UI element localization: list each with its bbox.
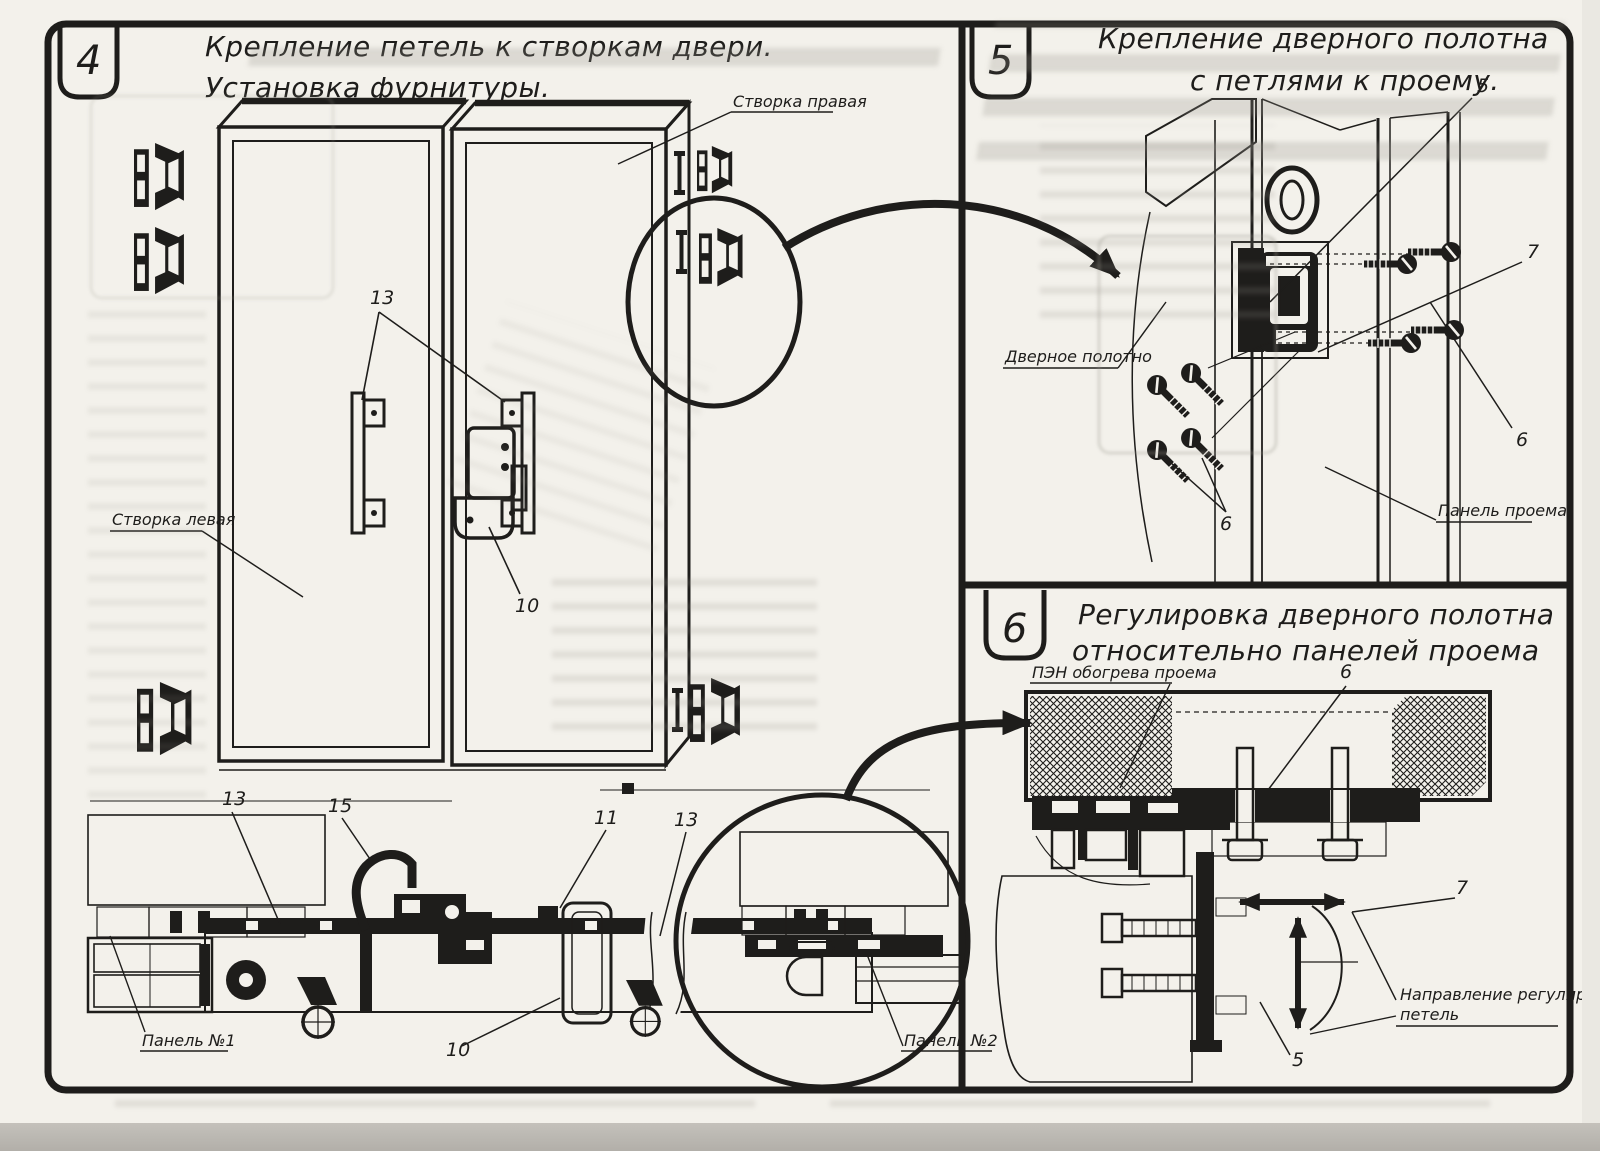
hinge-block — [1232, 242, 1328, 358]
panel6-title-line1: Регулировка дверного полотна — [1078, 598, 1554, 631]
scanned-assembly-drawing-page: 4 5 6 Крепление петель к створкам двери.… — [0, 0, 1600, 1151]
callout-10-mid: 10 — [515, 595, 539, 617]
panel6-number: 6 — [1002, 606, 1027, 652]
callout-6-right: 6 — [1516, 429, 1528, 451]
callout-13-right: 13 — [674, 809, 698, 831]
hinge-pin-icon — [672, 688, 683, 732]
hinge-icon — [137, 682, 191, 755]
hinge-pin-icon — [674, 151, 685, 195]
hinge-bolt — [1102, 914, 1196, 942]
hinge-icon — [134, 227, 184, 294]
wall-section-hatch — [996, 876, 1192, 1082]
scan-edge-right — [1582, 0, 1600, 1151]
panel4-door-leaves — [219, 101, 689, 770]
callout-6-left: 6 — [1220, 513, 1232, 535]
hinge-icons-right-edge — [672, 146, 743, 745]
label-panel1: Панель №1 — [142, 1031, 236, 1050]
panel5-number: 5 — [988, 38, 1013, 84]
brick-wall-left — [88, 815, 325, 905]
callout-7: 7 — [1456, 877, 1468, 899]
hinge-icons-left — [134, 143, 191, 755]
label-pen-heater: ПЭН обогрева проема — [1032, 663, 1217, 682]
right-leaf-top-face — [452, 103, 689, 129]
panel2-section-detail — [740, 832, 960, 1003]
brick-wall-right — [740, 832, 948, 906]
label-panel2: Панель №2 — [904, 1031, 998, 1050]
detail-arrow-to-panel5 — [784, 204, 1118, 276]
swing-arc — [1310, 906, 1342, 1030]
callout-11: 11 — [594, 807, 618, 829]
label-door-leaf: Дверное полотно — [1004, 347, 1152, 366]
door-viewer-oval — [1267, 168, 1317, 232]
screw-icon — [1177, 424, 1229, 476]
scan-strip-bottom — [0, 1123, 1600, 1151]
hinge-plate-section — [1196, 852, 1214, 1048]
callout-13-left: 13 — [222, 788, 246, 810]
panel5-title-line1: Крепление дверного полотна — [1098, 22, 1549, 55]
hinge-icon — [697, 146, 732, 193]
callout-15: 15 — [328, 795, 352, 817]
label-left-leaf: Створка левая — [112, 510, 236, 529]
panel5-title-line2: с петлями к проему. — [1190, 64, 1500, 97]
callout-5: 5 — [1292, 1049, 1304, 1071]
roller-wheel — [297, 977, 337, 1039]
callout-10-bottom: 10 — [446, 1039, 470, 1061]
label-right-leaf: Створка правая — [733, 92, 867, 111]
hinge-icon — [690, 678, 740, 745]
left-leaf-top-face — [219, 101, 466, 127]
hinge-icon — [134, 143, 184, 210]
callout-7: 7 — [1527, 241, 1539, 263]
engineering-drawing: 4 5 6 Крепление петель к створкам двери.… — [0, 0, 1600, 1151]
detail-circle-hinges — [628, 198, 800, 406]
left-leaf-front — [219, 127, 443, 761]
callout-6: 6 — [1340, 661, 1352, 683]
hinge-pin-icon — [676, 230, 687, 274]
hinge-icon — [699, 228, 743, 286]
detail-arrow-to-panel6 — [846, 723, 1030, 800]
hinge-bolt — [1102, 969, 1196, 997]
screw-icon — [1177, 359, 1229, 411]
right-leaf-front — [452, 129, 666, 765]
panel4-number: 4 — [76, 38, 101, 84]
door-cut-hatch — [1146, 99, 1256, 206]
label-adjust-direction-line2: петель — [1400, 1005, 1459, 1024]
callout-13-top: 13 — [370, 287, 394, 309]
screw-icon — [1368, 333, 1421, 353]
label-adjust-direction-line1: Направление регулировки — [1400, 985, 1600, 1004]
label-opening-panel: Панель проема — [1438, 501, 1567, 520]
panel4-title-line1: Крепление петель к створкам двери. — [205, 30, 773, 63]
screw-icon — [1408, 242, 1461, 262]
callout-5: 5 — [1477, 75, 1489, 97]
